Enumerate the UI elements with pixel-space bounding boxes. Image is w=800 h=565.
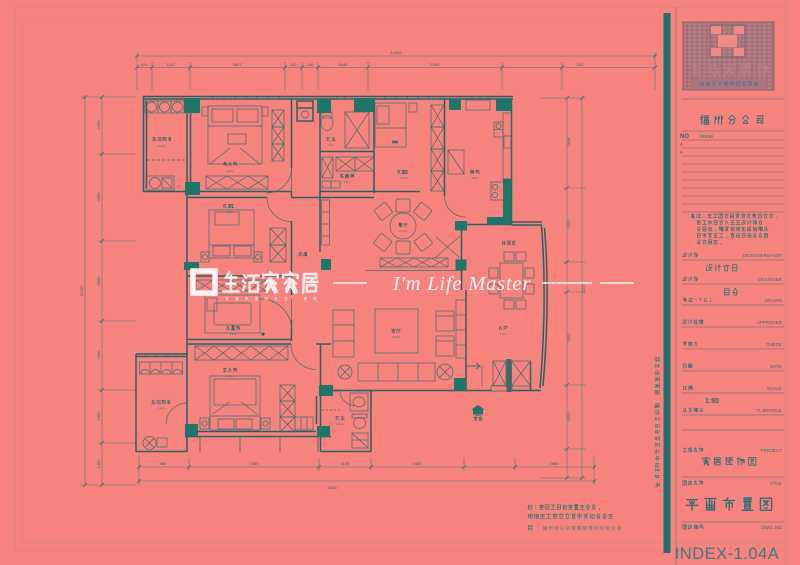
svg-text:PROJECT: PROJECT — [761, 448, 783, 453]
svg-text:7085: 7085 — [250, 461, 260, 466]
svg-text:APPROVED: APPROVED — [756, 320, 782, 325]
svg-text:2350: 2350 — [96, 120, 101, 130]
svg-text:1: 1 — [231, 204, 234, 210]
svg-text:12.5m²: 12.5m² — [226, 169, 234, 173]
svg-text:1145: 1145 — [341, 461, 350, 466]
svg-text:DWG. NO: DWG. NO — [761, 525, 782, 530]
svg-text:10.2m²: 10.2m² — [400, 176, 408, 180]
svg-text:12.6m²: 12.6m² — [399, 229, 407, 233]
svg-text:16027: 16027 — [327, 485, 339, 490]
svg-text:2930: 2930 — [566, 333, 571, 343]
svg-text:2: 2 — [405, 170, 408, 176]
svg-text:100: 100 — [141, 62, 148, 67]
svg-text:2020: 2020 — [566, 412, 571, 422]
svg-text:9.8m²: 9.8m² — [227, 210, 234, 214]
svg-text:NO: NO — [680, 134, 689, 140]
svg-text:DESIGNER&ASST: DESIGNER&ASST — [743, 253, 782, 258]
svg-text:TL;IENTELE: TL;IENTELE — [756, 408, 782, 413]
svg-text:240: 240 — [307, 62, 314, 67]
svg-text:2565: 2565 — [550, 461, 560, 466]
svg-text:4.2m²: 4.2m² — [328, 143, 335, 147]
svg-text:2400: 2400 — [96, 350, 101, 360]
svg-text:26.8m²: 26.8m² — [392, 335, 400, 339]
svg-text:I'm Life Master: I'm Life Master — [392, 273, 531, 295]
svg-text:B: B — [680, 150, 683, 155]
svg-text:100: 100 — [290, 62, 297, 67]
svg-text:CHECK: CHECK — [766, 342, 783, 347]
svg-text:Issue: Issue — [700, 134, 713, 140]
svg-text:240: 240 — [577, 62, 584, 67]
svg-text:A: A — [680, 142, 683, 147]
svg-text:DRAWN: DRAWN — [765, 298, 782, 303]
svg-text:8.6m²: 8.6m² — [472, 176, 479, 180]
svg-text:1:80: 1:80 — [705, 398, 719, 405]
svg-text:SCALE: SCALE — [767, 386, 782, 391]
svg-text:4.1m²: 4.1m² — [500, 332, 507, 336]
svg-text:DATE: DATE — [770, 364, 782, 369]
svg-text:6.0m²: 6.0m² — [159, 144, 166, 148]
svg-text:3897: 3897 — [233, 62, 243, 67]
svg-text:1850: 1850 — [96, 411, 101, 421]
svg-text:2330: 2330 — [566, 219, 571, 229]
svg-text:4.6m²: 4.6m² — [344, 180, 351, 184]
svg-text:INDEX-1.04A: INDEX-1.04A — [675, 545, 780, 563]
svg-text:E: E — [704, 298, 708, 304]
svg-text:16.5m²: 16.5m² — [226, 374, 234, 378]
svg-text:4.8m²: 4.8m² — [337, 422, 344, 426]
svg-text:2: 2 — [653, 468, 660, 472]
svg-text:2465: 2465 — [413, 461, 423, 466]
svg-text:2800: 2800 — [96, 276, 101, 286]
svg-text:8.4m²: 8.4m² — [230, 332, 237, 336]
svg-text:14305: 14305 — [390, 50, 402, 55]
svg-text:9: 9 — [653, 475, 660, 479]
svg-text:1450: 1450 — [96, 459, 101, 469]
svg-text:·: · — [291, 296, 292, 301]
svg-text:880: 880 — [160, 461, 167, 466]
svg-text:2700: 2700 — [392, 140, 398, 144]
svg-text:5295: 5295 — [431, 62, 441, 67]
svg-text:2848: 2848 — [566, 137, 571, 147]
svg-text:1447: 1447 — [167, 62, 177, 67]
svg-text:3050: 3050 — [96, 192, 101, 202]
svg-text:TITLE: TITLE — [769, 481, 782, 486]
svg-text:8045: 8045 — [339, 62, 349, 67]
svg-text:11305: 11305 — [79, 285, 84, 297]
svg-text:L: L — [710, 298, 713, 304]
svg-text:5.2m²: 5.2m² — [158, 406, 165, 410]
svg-text:DESIGNER: DESIGNER — [758, 277, 783, 282]
